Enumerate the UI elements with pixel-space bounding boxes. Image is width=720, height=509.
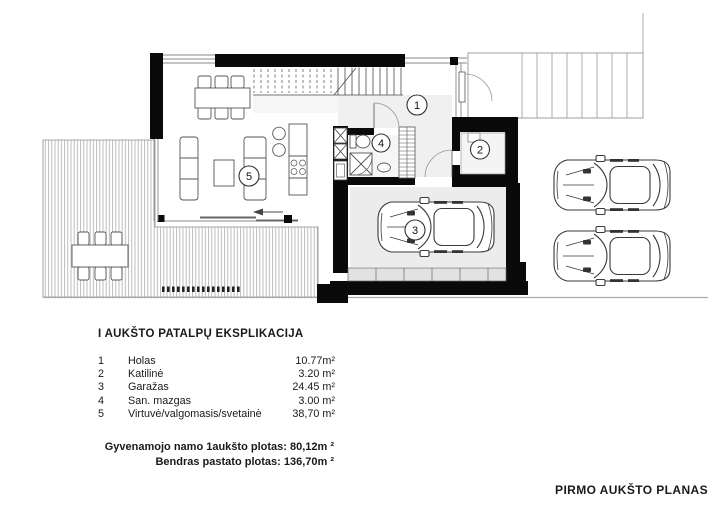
toilet: [356, 135, 370, 148]
bar-stool: [273, 144, 286, 157]
room-num: 4: [98, 395, 128, 408]
room-area: 10.77m²: [263, 355, 335, 368]
plan-title: PIRMO AUKŠTO PLANAS: [555, 483, 708, 497]
room-num: 2: [98, 368, 128, 381]
sink: [378, 163, 391, 172]
room-area: 3.00 m²: [263, 395, 335, 408]
legend-row-2: 2 Katilinė 3.20 m²: [98, 368, 335, 381]
garage-door: [348, 268, 506, 281]
kitchen-island: [289, 124, 307, 195]
sofa-left: [180, 137, 198, 200]
totals: Gyvenamojo namo 1aukšto plotas: 80,12m ²…: [60, 440, 334, 470]
room-num: 1: [98, 355, 128, 368]
legend-row-4: 4 San. mazgas 3.00 m²: [98, 395, 335, 408]
room-name: San. mazgas: [128, 395, 263, 408]
dining-table: [195, 88, 250, 108]
room-num: 3: [98, 381, 128, 394]
dining-set: [195, 76, 250, 119]
room-area: 24.45 m²: [263, 381, 335, 394]
corridor-floor: [415, 128, 452, 177]
svg-text:5: 5: [246, 171, 252, 183]
total-building-area: Bendras pastato plotas: 136,70m ²: [60, 455, 334, 470]
stairs: [253, 68, 403, 96]
room-num: 5: [98, 408, 128, 421]
room-number-1: 1: [407, 95, 427, 115]
svg-text:4: 4: [378, 138, 384, 150]
entry-door: [465, 74, 492, 101]
room-name: Katilinė: [128, 368, 263, 381]
parked-car-1: [554, 156, 670, 215]
room-number-3: 3: [405, 220, 425, 240]
svg-text:1: 1: [414, 100, 420, 112]
toilet-tank: [350, 135, 356, 148]
coffee-table: [214, 160, 234, 186]
legend-row-3: 3 Garažas 24.45 m²: [98, 381, 335, 394]
room-name: Garažas: [128, 381, 263, 394]
radiator: [399, 127, 415, 178]
room-name: Holas: [128, 355, 263, 368]
vent-shafts: [334, 128, 347, 180]
room-name: Virtuvė/valgomasis/svetainė: [128, 408, 263, 421]
total-floor-area: Gyvenamojo namo 1aukšto plotas: 80,12m ²: [60, 440, 334, 455]
room-number-5: 5: [239, 166, 259, 186]
legend-table: 1 Holas 10.77m² 2 Katilinė 3.20 m² 3 Gar…: [98, 355, 335, 421]
room-number-2: 2: [471, 140, 490, 159]
floor-plan-svg: 1 2 3 4 5: [0, 0, 720, 320]
slide-arrow: [253, 209, 263, 216]
room-area: 3.20 m²: [263, 368, 335, 381]
room-area: 38,70 m²: [263, 408, 335, 421]
room-number-4: 4: [372, 134, 390, 152]
parked-car-2: [554, 227, 670, 286]
svg-text:3: 3: [412, 225, 418, 237]
legend-title: I AUKŠTO PATALPŲ EKSPLIKACIJA: [98, 328, 304, 340]
svg-text:2: 2: [477, 144, 483, 156]
terrace: [468, 13, 643, 118]
hall-floor: [338, 95, 452, 128]
living-furniture: [180, 124, 307, 200]
floor-plan: 1 2 3 4 5: [0, 0, 720, 320]
legend-row-1: 1 Holas 10.77m²: [98, 355, 335, 368]
legend-row-5: 5 Virtuvė/valgomasis/svetainė 38,70 m²: [98, 408, 335, 421]
bar-stool: [273, 127, 286, 140]
sliding-door: [158, 209, 299, 224]
deck-table: [72, 232, 128, 280]
garage-car: [378, 198, 494, 257]
